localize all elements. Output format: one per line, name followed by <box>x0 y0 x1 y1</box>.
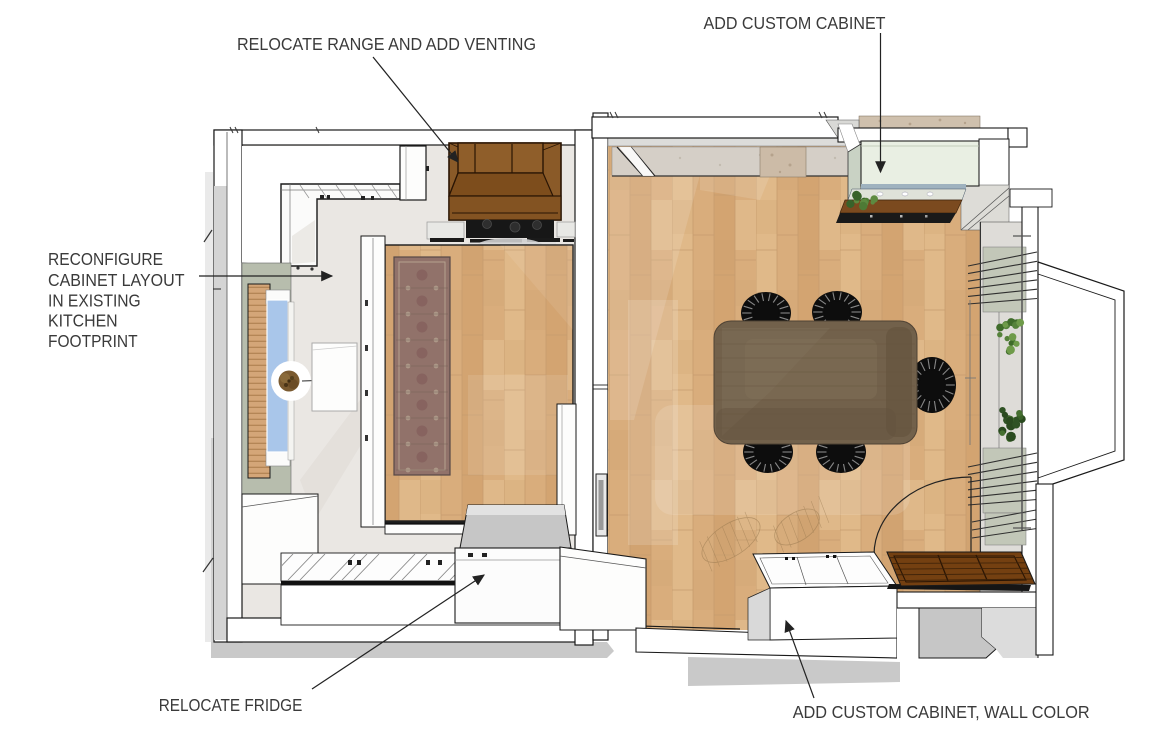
svg-text:ADD CUSTOM CABINET: ADD CUSTOM CABINET <box>704 13 886 33</box>
svg-text:RELOCATE FRIDGE: RELOCATE FRIDGE <box>159 695 303 715</box>
svg-text:CABINET LAYOUT: CABINET LAYOUT <box>48 270 185 290</box>
svg-text:RELOCATE RANGE AND ADD VENTING: RELOCATE RANGE AND ADD VENTING <box>237 34 536 54</box>
svg-text:RECONFIGURE: RECONFIGURE <box>48 249 163 269</box>
svg-text:IN EXISTING: IN EXISTING <box>48 291 141 311</box>
svg-text:FOOTPRINT: FOOTPRINT <box>48 331 138 351</box>
svg-text:ADD CUSTOM CABINET, WALL COLOR: ADD CUSTOM CABINET, WALL COLOR <box>793 702 1090 722</box>
svg-text:KITCHEN: KITCHEN <box>48 311 118 331</box>
